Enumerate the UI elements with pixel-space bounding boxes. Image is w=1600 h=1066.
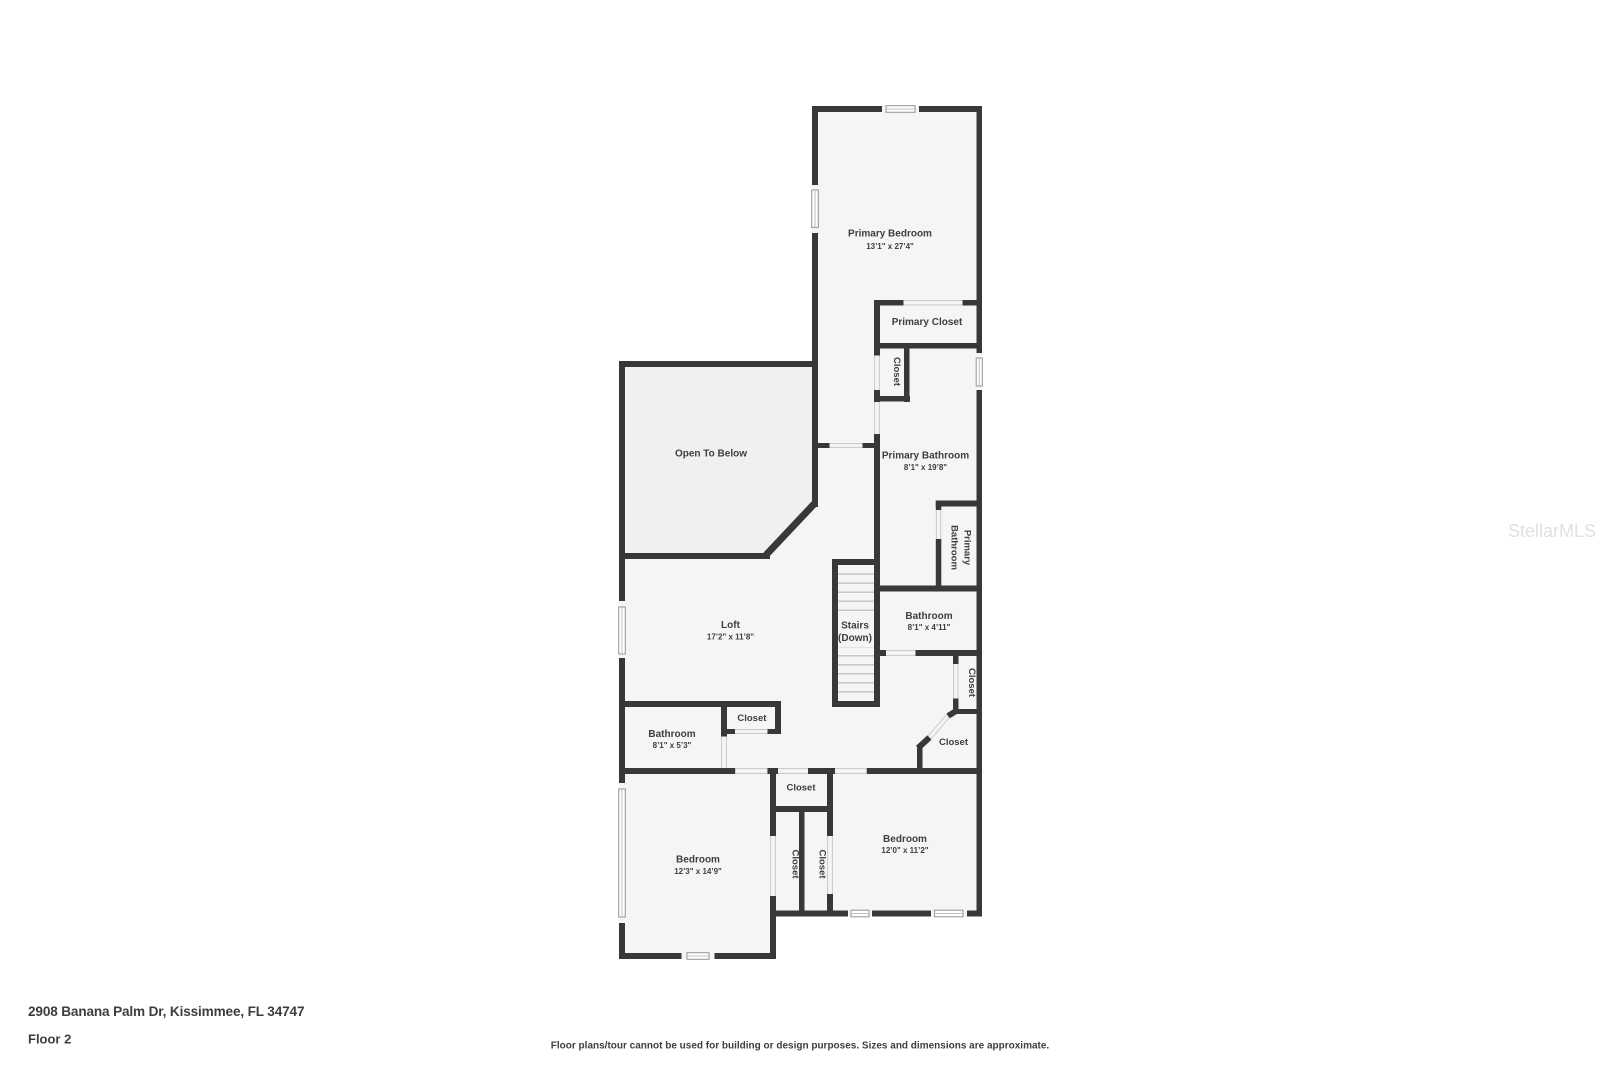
svg-text:Stairs: Stairs <box>841 621 869 632</box>
svg-text:12’3" x 14’9": 12’3" x 14’9" <box>674 867 722 876</box>
svg-text:Bathroom: Bathroom <box>905 611 952 622</box>
svg-text:13’1" x 27’4": 13’1" x 27’4" <box>866 242 914 251</box>
svg-text:Closet: Closet <box>891 357 902 387</box>
svg-text:Primary Bedroom: Primary Bedroom <box>848 229 932 240</box>
svg-text:Closet: Closet <box>737 713 767 724</box>
svg-text:8’1" x 4’11": 8’1" x 4’11" <box>908 623 951 632</box>
svg-text:Closet: Closet <box>816 849 827 879</box>
svg-text:Closet: Closet <box>789 849 800 879</box>
svg-text:Open To Below: Open To Below <box>675 449 747 460</box>
svg-text:Loft: Loft <box>721 620 741 631</box>
svg-text:Primary Closet: Primary Closet <box>892 317 963 328</box>
svg-text:Bathroom: Bathroom <box>648 729 695 740</box>
svg-text:17’2" x 11’8": 17’2" x 11’8" <box>707 632 754 641</box>
svg-text:Bathroom: Bathroom <box>948 525 959 570</box>
svg-text:Primary Bathroom: Primary Bathroom <box>882 451 969 462</box>
svg-text:Closet: Closet <box>939 737 969 748</box>
svg-text:Bedroom: Bedroom <box>676 855 720 866</box>
svg-text:8’1" x 5’3": 8’1" x 5’3" <box>653 741 692 750</box>
svg-text:Primary: Primary <box>962 530 973 566</box>
svg-text:Bedroom: Bedroom <box>883 834 927 845</box>
svg-text:Floor plans/tour cannot be use: Floor plans/tour cannot be used for buil… <box>551 1041 1050 1052</box>
svg-text:Closet: Closet <box>966 668 977 698</box>
svg-text:(Down): (Down) <box>838 633 872 644</box>
svg-text:Closet: Closet <box>786 782 816 793</box>
svg-text:8’1" x 19’8": 8’1" x 19’8" <box>904 463 947 472</box>
svg-text:Floor 2: Floor 2 <box>28 1032 71 1047</box>
svg-text:12’0" x 11’2": 12’0" x 11’2" <box>881 846 928 855</box>
svg-text:StellarMLS: StellarMLS <box>1508 521 1596 541</box>
svg-text:2908 Banana Palm Dr, Kissimmee: 2908 Banana Palm Dr, Kissimmee, FL 34747 <box>28 1004 304 1019</box>
